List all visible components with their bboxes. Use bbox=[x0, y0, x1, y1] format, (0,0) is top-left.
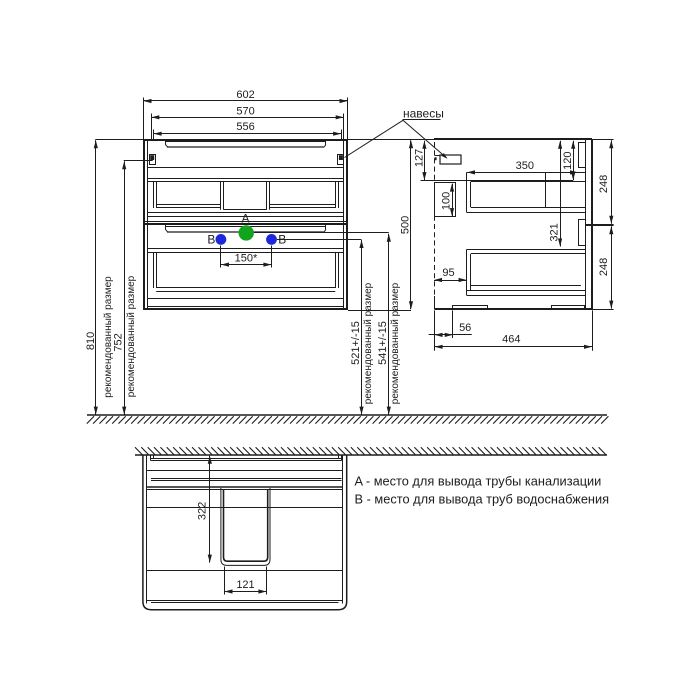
svg-text:570: 570 bbox=[236, 105, 254, 117]
svg-text:602: 602 bbox=[236, 89, 254, 101]
svg-text:500: 500 bbox=[400, 216, 412, 234]
svg-text:350: 350 bbox=[516, 160, 534, 172]
svg-text:322: 322 bbox=[197, 502, 209, 520]
svg-text:навесы: навесы bbox=[403, 107, 444, 121]
svg-text:464: 464 bbox=[502, 334, 520, 346]
svg-text:127: 127 bbox=[413, 149, 425, 167]
svg-text:95: 95 bbox=[442, 267, 454, 279]
svg-text:рекомендованный размер: рекомендованный размер bbox=[363, 282, 374, 404]
svg-text:121: 121 bbox=[236, 579, 254, 591]
svg-text:556: 556 bbox=[236, 121, 254, 133]
svg-text:752: 752 bbox=[112, 333, 124, 351]
svg-text:рекомендованный размер: рекомендованный размер bbox=[126, 275, 137, 397]
svg-text:248: 248 bbox=[598, 258, 610, 276]
svg-text:B - место для вывода труб водо: B - место для вывода труб водоснабжения bbox=[355, 492, 610, 507]
svg-text:541+/-15: 541+/-15 bbox=[377, 321, 389, 365]
svg-text:A - место для вывода трубы кан: A - место для вывода трубы канализации bbox=[355, 474, 602, 489]
svg-text:A: A bbox=[241, 212, 249, 226]
svg-text:100: 100 bbox=[440, 192, 452, 210]
svg-text:120: 120 bbox=[562, 152, 574, 170]
svg-text:248: 248 bbox=[598, 175, 610, 193]
svg-text:321: 321 bbox=[549, 223, 561, 241]
svg-text:B: B bbox=[207, 233, 215, 247]
svg-text:521+/-15: 521+/-15 bbox=[350, 321, 362, 365]
svg-text:рекомендованный размер: рекомендованный размер bbox=[390, 282, 401, 404]
svg-text:56: 56 bbox=[459, 322, 471, 334]
svg-text:150*: 150* bbox=[235, 252, 258, 264]
svg-text:810: 810 bbox=[85, 332, 97, 350]
